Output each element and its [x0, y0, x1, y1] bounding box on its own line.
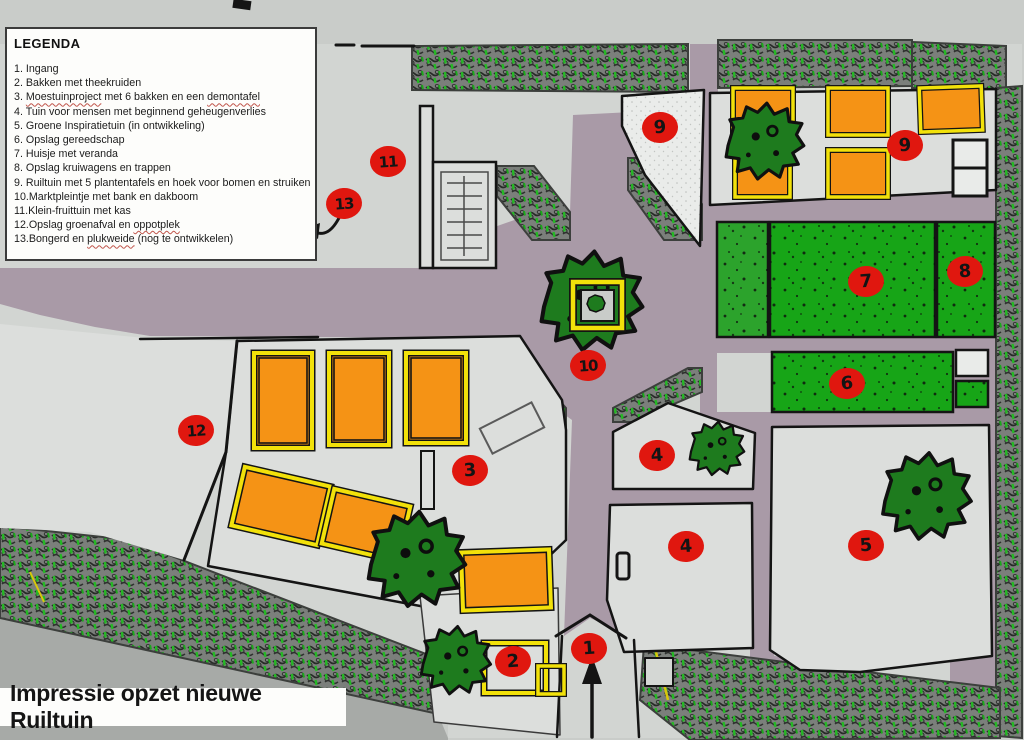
map-title: Impressie opzet nieuwe Ruiltuin: [0, 680, 346, 734]
legend-title: LEGENDA: [14, 36, 309, 51]
small-white-box: [956, 350, 988, 376]
legend-item: 3. Moestuinproject met 6 bakken en een d…: [14, 90, 309, 104]
two-cell-table: [953, 140, 987, 196]
garden-plan-page: LEGENDA 1. Ingang2. Bakken met theekruid…: [0, 0, 1024, 740]
legend-items: 1. Ingang2. Bakken met theekruiden3. Moe…: [14, 62, 309, 247]
legend-item: 13.Bongerd en plukweide (nog te ontwikke…: [14, 232, 309, 246]
legend-item: 2. Bakken met theekruiden: [14, 76, 309, 90]
title-banner: Impressie opzet nieuwe Ruiltuin: [0, 688, 346, 726]
paper-mark: [232, 0, 251, 10]
hedge-top-right: [912, 42, 1006, 90]
legend-item: 5. Groene Inspiratietuin (in ontwikkelin…: [14, 119, 309, 133]
bench: [617, 553, 629, 579]
legend-item: 8. Opslag kruiwagens en trappen: [14, 161, 309, 175]
legend-item: 4. Tuin voor mensen met beginnend geheug…: [14, 105, 309, 119]
hedge-top-mid: [718, 40, 912, 88]
hedge-right-edge: [996, 86, 1022, 738]
legend-item: 10.Marktpleintje met bank en dakboom: [14, 190, 309, 204]
legend-item: 11.Klein-fruittuin met kas: [14, 204, 309, 218]
hedge-gap-square: [645, 658, 673, 686]
narrow-bar: [421, 451, 434, 509]
legend-item: 9. Ruiltuin met 5 plantentafels en hoek …: [14, 176, 309, 190]
legend-item: 1. Ingang: [14, 62, 309, 76]
hedge-top-left: [412, 44, 688, 92]
legend-item: 12.Opslag groenafval en oppotplek: [14, 218, 309, 232]
legend-box: LEGENDA 1. Ingang2. Bakken met theekruid…: [5, 27, 317, 261]
legend-item: 7. Huisje met veranda: [14, 147, 309, 161]
legend-item: 6. Opslag gereedschap: [14, 133, 309, 147]
